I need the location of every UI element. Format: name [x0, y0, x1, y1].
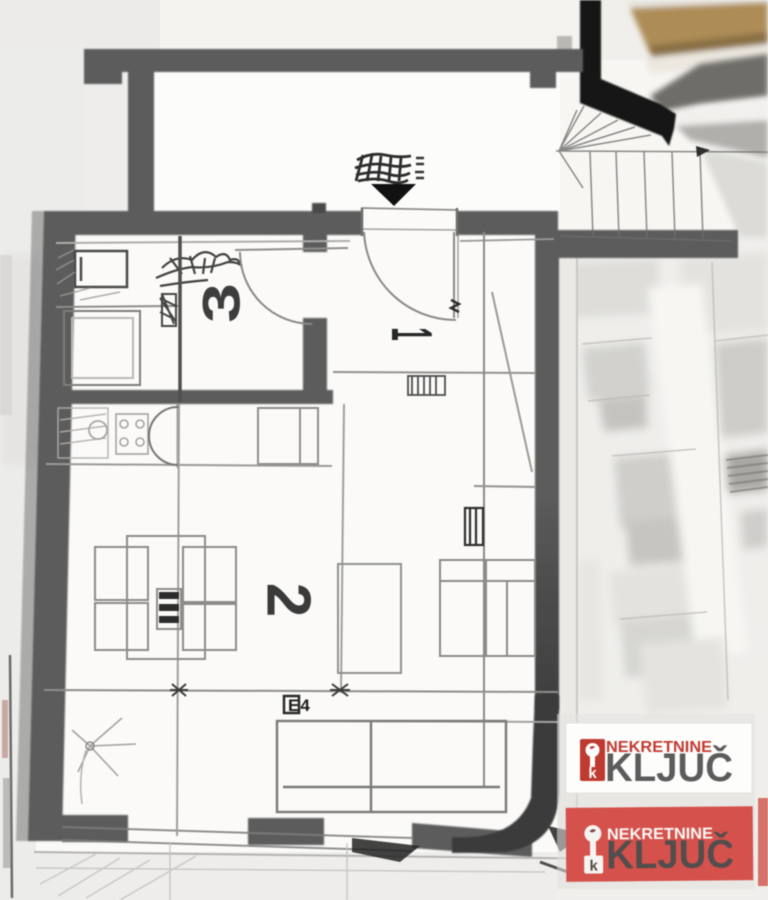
svg-text:KLJUČ: KLJUČ — [606, 830, 734, 877]
svg-text:2: 2 — [254, 583, 323, 617]
svg-text:k: k — [588, 765, 597, 782]
svg-text:k: k — [589, 858, 598, 875]
svg-text:KLJUČ: KLJUČ — [605, 744, 733, 790]
svg-text:1: 1 — [379, 327, 443, 340]
svg-text:3: 3 — [193, 283, 252, 323]
svg-text:E4: E4 — [288, 696, 311, 715]
